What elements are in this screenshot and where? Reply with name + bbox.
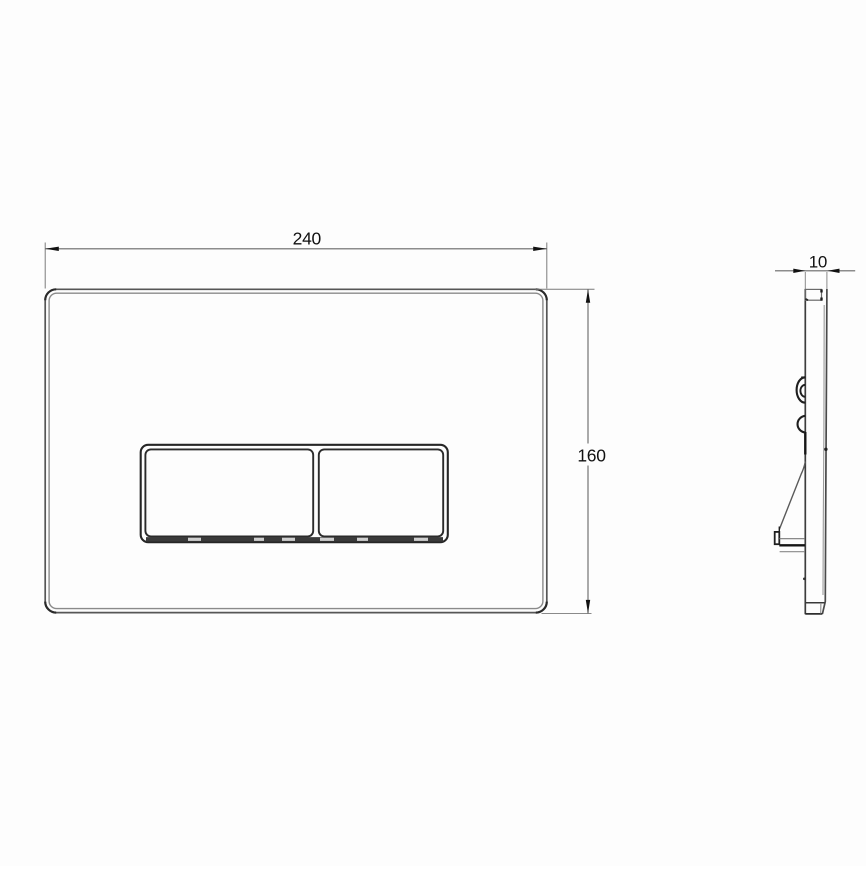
svg-text:240: 240 xyxy=(293,228,322,248)
svg-text:160: 160 xyxy=(577,445,606,465)
svg-text:10: 10 xyxy=(809,252,827,271)
